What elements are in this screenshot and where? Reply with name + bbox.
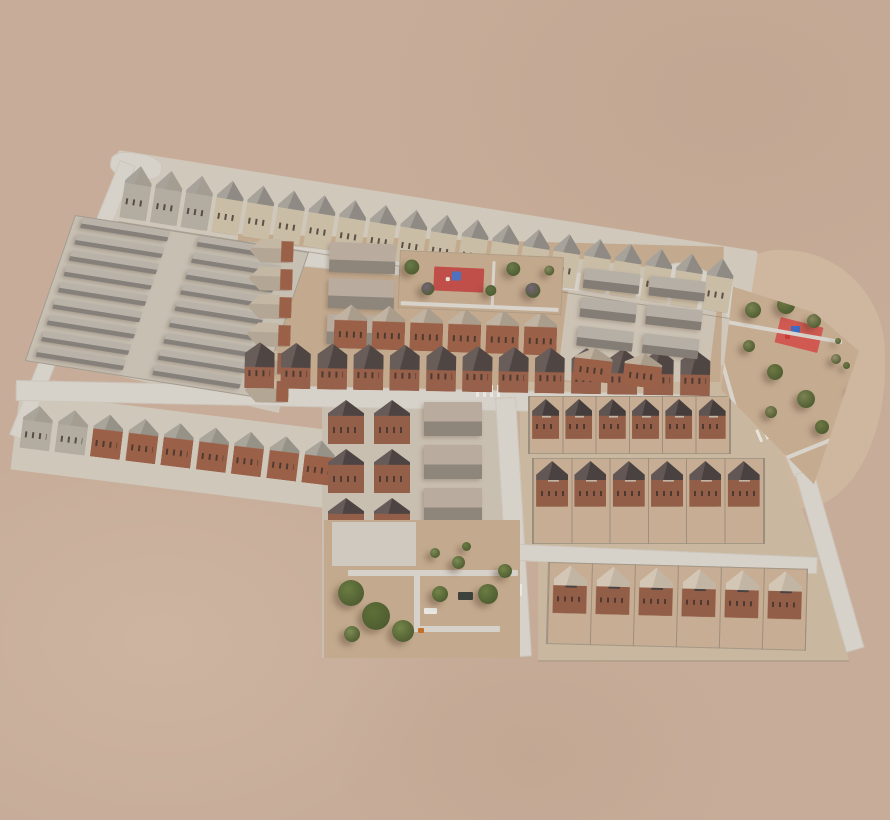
house [665, 399, 692, 439]
tree [498, 564, 512, 578]
tree [843, 362, 850, 369]
house [622, 351, 664, 389]
house [651, 461, 683, 507]
house [328, 400, 364, 444]
house [242, 183, 277, 241]
house [599, 399, 626, 439]
house [374, 449, 410, 493]
pocket-park-playground [397, 250, 563, 315]
play-structure [446, 277, 450, 281]
house [728, 461, 760, 507]
flats-block-east [572, 268, 716, 394]
house [280, 343, 311, 390]
house [19, 404, 54, 451]
car [424, 608, 437, 614]
house [552, 565, 587, 614]
house [498, 346, 529, 393]
house [374, 400, 410, 444]
house [574, 461, 606, 507]
tree [506, 262, 521, 277]
tree [485, 285, 496, 296]
walled-house-row-1 [528, 396, 731, 454]
house [317, 343, 348, 390]
tree [338, 580, 364, 606]
house [699, 399, 726, 439]
tree [544, 265, 554, 275]
aerial-development-render [0, 0, 890, 820]
house [572, 345, 614, 383]
tree [404, 259, 420, 275]
tree [362, 602, 390, 630]
tree [525, 283, 541, 299]
slab-cluster-south [424, 402, 484, 530]
house [462, 346, 493, 393]
tree [767, 364, 783, 380]
tree [430, 548, 440, 558]
tree [344, 626, 360, 642]
tree [462, 542, 471, 551]
play-structure [418, 628, 424, 633]
parking-pad [332, 522, 416, 566]
tree [745, 302, 761, 318]
south-park-trees [324, 520, 520, 658]
house [536, 461, 568, 507]
flat-unit [579, 297, 637, 323]
house [55, 408, 90, 455]
house [160, 421, 195, 468]
house [249, 238, 294, 264]
tree [432, 586, 448, 602]
house [180, 174, 215, 232]
house [244, 342, 275, 389]
rowhouse-slab [424, 488, 482, 522]
tree [743, 340, 755, 352]
house [613, 461, 645, 507]
house [535, 347, 566, 394]
house [353, 344, 384, 391]
walled-house-row-2 [532, 458, 765, 544]
path [348, 570, 518, 576]
rowhouse-slab [329, 242, 396, 274]
house [272, 188, 307, 246]
tree [452, 556, 465, 569]
house [426, 345, 457, 392]
van [458, 592, 473, 600]
walled-house-row-3 [546, 562, 808, 651]
tree [392, 620, 414, 642]
tree [815, 420, 829, 434]
flat-unit [576, 326, 634, 352]
house [565, 399, 592, 439]
tree [478, 584, 498, 604]
path [414, 626, 500, 632]
house [248, 266, 293, 292]
house [231, 430, 266, 477]
tree [835, 338, 841, 344]
house [632, 399, 659, 439]
house-column-central [246, 238, 296, 352]
tree [797, 390, 815, 408]
house [638, 567, 673, 616]
house [150, 169, 185, 227]
house [196, 426, 231, 473]
house [125, 417, 160, 464]
rowhouse-slab [424, 402, 482, 436]
tree [765, 406, 777, 418]
flat-unit [642, 333, 700, 359]
tree [421, 282, 435, 296]
flat-unit [645, 304, 703, 330]
tree [831, 354, 841, 364]
house [595, 566, 630, 615]
house [247, 294, 292, 320]
play-structure [452, 271, 461, 280]
house [328, 449, 364, 493]
path [414, 570, 420, 632]
house [389, 345, 420, 392]
house [532, 399, 559, 439]
rowhouse-slab [424, 445, 482, 479]
house [724, 570, 759, 619]
house [90, 413, 125, 460]
house [689, 461, 721, 507]
house [681, 569, 716, 618]
house [211, 179, 246, 237]
house [266, 434, 301, 481]
house [767, 571, 802, 620]
